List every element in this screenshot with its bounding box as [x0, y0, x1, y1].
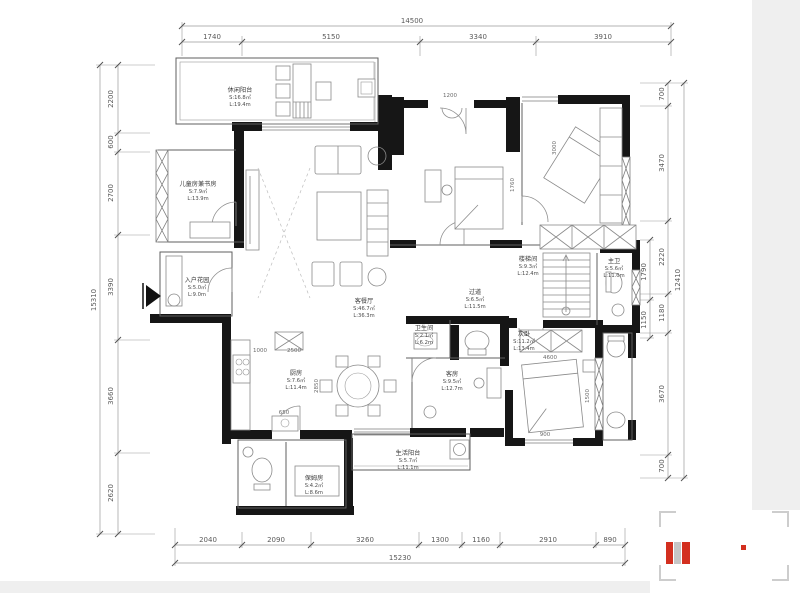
sofa-icon — [315, 146, 361, 174]
door-master — [522, 196, 548, 222]
dim-label: 3390 — [107, 278, 115, 296]
brand-logo — [660, 512, 788, 580]
lattice-window-bedroom2 — [595, 358, 603, 430]
tv-cabinet-icon — [246, 170, 259, 250]
closet-row-icon — [540, 225, 636, 249]
logo-red-dot — [741, 545, 746, 550]
dim-label: 2040 — [199, 536, 217, 544]
svg-text:客餐厅: 客餐厅 — [355, 297, 374, 305]
svg-text:入户花园: 入户花园 — [185, 276, 210, 284]
svg-text:S:7.6㎡: S:7.6㎡ — [287, 376, 306, 384]
dim-label: 1000 — [253, 348, 267, 354]
dim-label: 3910 — [594, 33, 612, 41]
svg-text:L:12.7m: L:12.7m — [441, 386, 462, 392]
dim-total-right: 12410 — [674, 269, 682, 291]
svg-text:L:11.4m: L:11.4m — [285, 385, 306, 391]
wardrobe-master-icon — [600, 108, 622, 223]
washer-icon — [450, 440, 469, 459]
svg-text:L:13.9m: L:13.9m — [187, 196, 208, 202]
logo-red-bar — [666, 542, 673, 564]
stool-icon — [424, 406, 436, 418]
dim-label: 4600 — [543, 355, 557, 361]
room-label-terrace: 休闲阳台 S:16.8㎡ L:19.4m — [228, 86, 253, 108]
svg-text:L:8.6m: L:8.6m — [305, 490, 323, 496]
logo-gray-bar — [674, 542, 681, 564]
dim-label: 2700 — [107, 184, 115, 202]
dim-label: 2200 — [107, 90, 115, 108]
armchair-icon — [312, 262, 334, 286]
svg-text:L:19.4m: L:19.4m — [229, 102, 250, 108]
dim-label: 2620 — [107, 484, 115, 502]
room-label-kids: 儿童房兼书房 S:7.9㎡ L:13.9m — [179, 180, 216, 202]
plant-icon — [368, 268, 386, 286]
dim-label: 2090 — [267, 536, 285, 544]
svg-text:L:12.4m: L:12.4m — [517, 271, 538, 277]
room-label-service-balcony: 生活阳台 S:5.7㎡ L:11.1m — [396, 449, 421, 471]
svg-text:S:2.1㎡: S:2.1㎡ — [415, 331, 434, 339]
room-label-stairs: 楼梯间 S:9.3㎡ L:12.4m — [517, 255, 538, 277]
page-edge-right — [752, 0, 800, 510]
dim-label: 1790 — [640, 263, 648, 281]
svg-text:次卧: 次卧 — [518, 330, 530, 338]
dim-label: 3260 — [356, 536, 374, 544]
dim-label: 3660 — [107, 387, 115, 405]
toilet-icon — [607, 336, 625, 357]
stairs-icon — [543, 253, 590, 317]
dining-table-icon — [320, 356, 396, 416]
dim-total-bottom: 15230 — [389, 554, 411, 562]
floor-plan-page: 14500 1740 5150 3340 3910 2040 2090 3260… — [0, 0, 800, 593]
svg-text:主卫: 主卫 — [608, 257, 620, 265]
logo-red-bar — [682, 542, 690, 564]
svg-text:L:11.1m: L:11.1m — [397, 465, 418, 471]
dim-label: 890 — [603, 536, 616, 544]
dim-label: 1150 — [640, 311, 648, 329]
svg-text:S:7.9㎡: S:7.9㎡ — [189, 187, 208, 195]
dim-label: 1180 — [658, 304, 666, 322]
shelf-icon — [367, 190, 388, 256]
dim-label: 2500 — [287, 348, 301, 354]
svg-text:卫生间: 卫生间 — [415, 324, 434, 332]
dimension-chain-bottom: 2040 2090 3260 1300 1160 2910 890 15230 — [172, 528, 628, 566]
nightstand-icon — [583, 360, 595, 372]
svg-text:S:5.7㎡: S:5.7㎡ — [399, 456, 418, 464]
dim-label: 1760 — [510, 178, 516, 192]
dim-label: 1300 — [431, 536, 449, 544]
coffee-table-icon — [317, 192, 361, 240]
floor-plan-drawing: 14500 1740 5150 3340 3910 2040 2090 3260… — [0, 0, 800, 593]
svg-text:厨房: 厨房 — [290, 369, 302, 377]
dim-label: 700 — [658, 87, 666, 100]
svg-text:保姆房: 保姆房 — [305, 474, 324, 482]
svg-text:过道: 过道 — [469, 288, 481, 296]
lattice-window-master — [622, 157, 630, 227]
room-label-master-bath: 主卫 S:5.6㎡ L:11.0m — [603, 257, 624, 279]
dim-label: 3470 — [658, 154, 666, 172]
room-label-kitchen: 厨房 S:7.6㎡ L:11.4m — [285, 369, 306, 391]
door-middle-room — [440, 108, 466, 134]
desk-icon — [487, 368, 501, 398]
svg-text:S:4.2㎡: S:4.2㎡ — [305, 481, 324, 489]
svg-text:S:5.0㎡: S:5.0㎡ — [188, 283, 207, 291]
svg-text:S:9.3㎡: S:9.3㎡ — [519, 262, 538, 270]
bed-middle-icon — [425, 167, 503, 229]
dim-label: 1500 — [585, 389, 591, 403]
dim-label: 1200 — [443, 93, 457, 99]
svg-text:儿童房兼书房: 儿童房兼书房 — [179, 180, 216, 188]
dim-label: 3000 — [552, 141, 558, 155]
basin-icon — [243, 447, 253, 457]
chair-icon — [474, 378, 484, 388]
dim-label: 700 — [658, 459, 666, 472]
dim-label: 1740 — [203, 33, 221, 41]
svg-text:L:11.0m: L:11.0m — [603, 273, 624, 279]
toilet-icon — [252, 458, 272, 490]
page-edge-bottom — [0, 581, 650, 593]
dim-label: 1160 — [472, 536, 490, 544]
swing-dashes — [258, 168, 310, 298]
dim-total-top: 14500 — [401, 17, 423, 25]
armchair-icon — [340, 262, 362, 286]
toilet-icon — [465, 331, 489, 355]
svg-text:L:6.2m: L:6.2m — [415, 340, 433, 346]
svg-text:楼梯间: 楼梯间 — [519, 255, 538, 263]
dim-label: 3670 — [658, 385, 666, 403]
entry-arrow-icon — [143, 283, 161, 309]
lattice-window-left — [156, 150, 168, 242]
dimension-chain-left: 2200 600 2700 3390 3660 2620 15310 — [90, 62, 155, 537]
svg-text:L:11.5m: L:11.5m — [464, 304, 485, 310]
dim-label: 5150 — [322, 33, 340, 41]
room-label-entry-garden: 入户花园 S:5.0㎡ L:9.0m — [185, 276, 210, 298]
dresser-icon — [190, 222, 230, 238]
dim-label: 2850 — [314, 379, 320, 393]
dim-label: 650 — [279, 410, 290, 416]
svg-text:S:16.8㎡: S:16.8㎡ — [229, 93, 252, 101]
svg-text:客房: 客房 — [446, 370, 458, 378]
dim-label: 600 — [107, 135, 115, 148]
svg-text:L:36.3m: L:36.3m — [353, 313, 374, 319]
dim-label: 2220 — [658, 248, 666, 266]
dimension-chain-top: 14500 1740 5150 3340 3910 — [179, 17, 674, 56]
svg-text:生活阳台: 生活阳台 — [396, 449, 421, 457]
room-label-guest: 客房 S:9.5㎡ L:12.7m — [441, 370, 462, 392]
svg-text:L:9.0m: L:9.0m — [188, 292, 206, 298]
basin-icon — [612, 304, 624, 316]
sink-icon — [272, 416, 298, 431]
bed2-icon — [522, 359, 584, 432]
dimension-chain-right: 700 3470 2220 1180 3670 700 12410 1790 1… — [640, 80, 688, 481]
svg-text:S:5.6㎡: S:5.6㎡ — [605, 264, 624, 272]
terrace-cabinets-icon — [276, 62, 375, 122]
door-guest — [412, 358, 436, 382]
svg-text:休闲阳台: 休闲阳台 — [228, 86, 253, 94]
dim-total-left: 15310 — [90, 289, 98, 311]
door-entry-garden — [208, 268, 232, 292]
dim-label: 3340 — [469, 33, 487, 41]
svg-text:S:46.7㎡: S:46.7㎡ — [353, 304, 376, 312]
dim-label: 900 — [540, 432, 551, 438]
basin-icon — [607, 412, 625, 428]
room-label-living-dining: 客餐厅 S:46.7㎡ L:36.3m — [353, 297, 376, 319]
svg-text:S:11.2㎡: S:11.2㎡ — [513, 337, 536, 345]
svg-text:S:9.5㎡: S:9.5㎡ — [443, 377, 462, 385]
room-label-hallway: 过道 S:6.5㎡ L:11.5m — [464, 288, 485, 310]
room-label-bath-small: 卫生间 S:2.1㎡ L:6.2m — [415, 324, 434, 346]
svg-text:S:6.5㎡: S:6.5㎡ — [466, 295, 485, 303]
lattice-window-bath — [632, 270, 640, 305]
svg-text:L:13.4m: L:13.4m — [513, 346, 534, 352]
room-label-maid: 保姆房 S:4.2㎡ L:8.6m — [305, 474, 324, 496]
dim-label: 2910 — [539, 536, 557, 544]
